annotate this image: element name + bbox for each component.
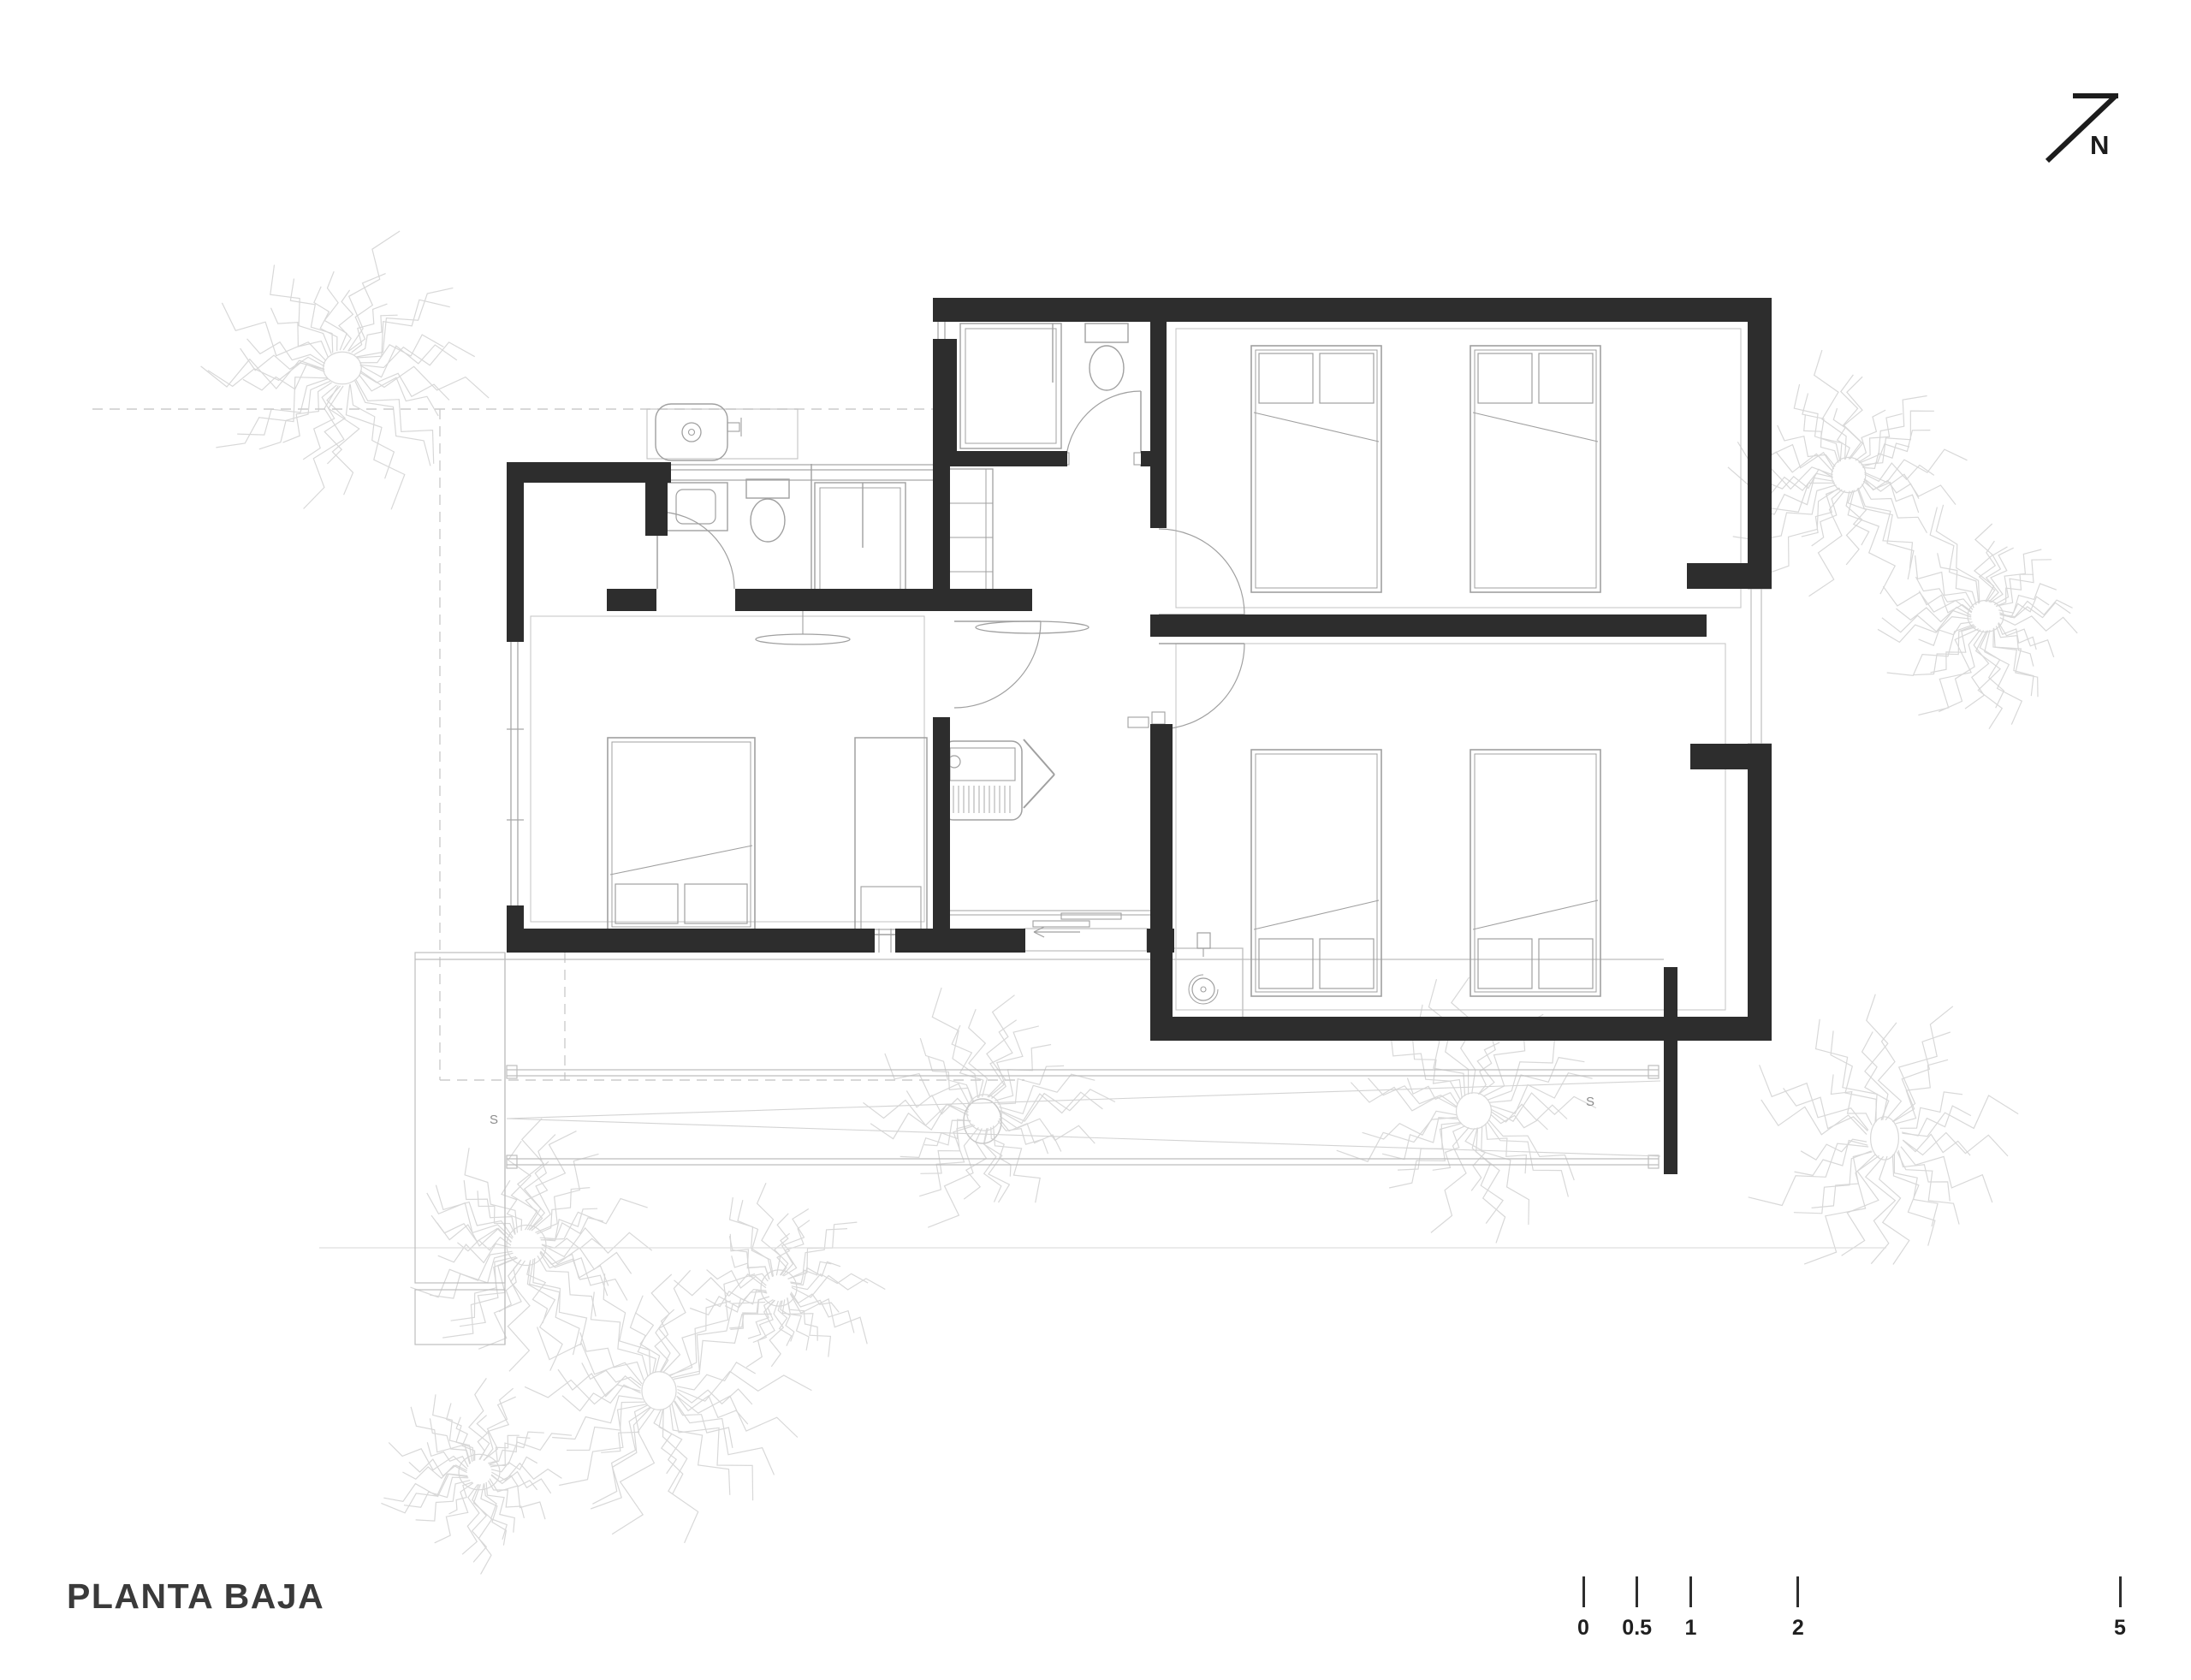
tree-frond [1857, 489, 1914, 580]
pillow [1320, 939, 1374, 988]
wall-segment [933, 339, 957, 464]
tree-frond [1841, 375, 1861, 460]
tree-trunk [324, 352, 361, 384]
tree-frond [964, 1128, 986, 1199]
tree-frond [769, 1301, 783, 1367]
drain-dot [1201, 987, 1206, 992]
tree-frond [1862, 430, 1931, 467]
door-swing [1159, 529, 1244, 614]
bed-inner [1475, 350, 1596, 588]
wall-segment [507, 462, 671, 483]
trees-layer [201, 231, 2078, 1574]
tree [201, 231, 490, 509]
toilet-tank [1085, 324, 1128, 342]
tree-frond [477, 1416, 487, 1460]
bed-outline [1470, 346, 1600, 592]
tree-frond [499, 1260, 521, 1312]
tree [411, 1119, 652, 1371]
tree-frond [631, 1312, 656, 1374]
drain [1192, 978, 1214, 1000]
pillow [1539, 939, 1593, 988]
wall-segment [1141, 451, 1150, 466]
shower-tray [960, 324, 1061, 448]
tree-frond [1491, 1093, 1596, 1121]
wall-segment [933, 451, 1067, 466]
tree-frond [1897, 1152, 1960, 1225]
tree-frond [1000, 1092, 1103, 1124]
tree-frond [707, 1270, 767, 1288]
tree-frond [1762, 436, 1834, 469]
heater-port-dot [689, 430, 695, 436]
tree-trunk [967, 1095, 1002, 1131]
terrace-layer [319, 589, 1886, 1345]
tree-frond [339, 290, 353, 350]
wall-segment [1150, 614, 1707, 637]
tree-frond [1897, 608, 1972, 622]
tree-frond [1903, 1095, 2019, 1137]
tree-frond [359, 372, 449, 400]
wall-segment [933, 298, 957, 312]
tree-frond [1486, 1124, 1527, 1174]
pillow [1478, 939, 1532, 988]
tree-frond [730, 1297, 769, 1329]
wall-segment [1150, 1017, 1772, 1041]
sheet-fold [1254, 413, 1379, 442]
tree-frond [283, 383, 332, 442]
tree-trunk [507, 1225, 546, 1265]
wall-segment [1690, 744, 1748, 769]
tree-frond [1844, 377, 1863, 459]
bed-outline [1251, 346, 1381, 592]
deck-rail-cap [507, 1155, 517, 1168]
tree-frond [791, 1261, 840, 1285]
tree-trunk [1832, 457, 1866, 492]
shower-tray-inner [820, 488, 900, 597]
tree-frond [1848, 490, 1869, 545]
fixtures-layer [507, 312, 1741, 1010]
tree-frond [270, 264, 331, 353]
door-jamb [1152, 712, 1165, 724]
room-inset-line [531, 616, 924, 922]
wall-segment [735, 589, 1032, 611]
tree-frond [1892, 1006, 1953, 1122]
toilet-tank [746, 479, 789, 498]
deck-rail-cap [507, 1066, 517, 1078]
tree-frond [348, 231, 400, 351]
wardrobe [855, 738, 927, 935]
tree-frond [663, 1409, 698, 1543]
tree-frond [537, 1256, 596, 1316]
bifold-door [1024, 775, 1054, 808]
pillow [1539, 353, 1593, 403]
toilet-bowl [1090, 346, 1124, 390]
tree-frond [1833, 408, 1850, 460]
tree-frond [1842, 1155, 1879, 1256]
tree-frond [508, 1261, 530, 1371]
tree-frond [994, 1125, 1041, 1202]
tree-frond [360, 366, 489, 398]
shower-tray-inner [965, 329, 1056, 443]
wall-segment [607, 589, 656, 611]
tree-frond [411, 1407, 470, 1464]
tree-frond [541, 1251, 609, 1286]
door-jamb [1128, 717, 1149, 727]
tree [381, 1378, 572, 1574]
tree [674, 1183, 886, 1367]
wall-segment [895, 929, 1025, 953]
slider-leaf [1061, 913, 1121, 919]
entry-arrow-head [1034, 927, 1044, 932]
planter-box [415, 1290, 505, 1345]
tree-trunk [642, 1372, 676, 1410]
pillow [1478, 353, 1532, 403]
wall-segment [1664, 967, 1677, 1174]
tree-trunk [1968, 600, 2004, 632]
tree-frond [2000, 600, 2073, 617]
pillow [1259, 353, 1313, 403]
tree-frond [1896, 1060, 1948, 1124]
tree-frond [1816, 1019, 1878, 1123]
bed-inner [1475, 754, 1596, 992]
tree-frond [460, 1258, 518, 1327]
tree-frond [208, 363, 324, 386]
tree-frond [1903, 1134, 1970, 1155]
tree-frond [540, 1252, 627, 1301]
bed [608, 738, 755, 931]
tree-frond [540, 1208, 597, 1238]
pillow [1259, 939, 1313, 988]
entry-arrow-head [1034, 932, 1044, 937]
tree-frond [592, 1407, 650, 1504]
tree [525, 1270, 811, 1543]
tree-trunk [1871, 1117, 1899, 1160]
wall-segment [933, 717, 950, 942]
tree-frond [525, 1380, 640, 1404]
bed-inner [1256, 350, 1377, 588]
wall-segment [507, 929, 875, 953]
tree-frond [792, 1276, 885, 1297]
wall-segment [933, 298, 1772, 322]
north-label: N [2090, 130, 2109, 160]
vanity-sink [676, 490, 715, 524]
heater-platform [647, 409, 798, 459]
drain-arc [1189, 975, 1218, 1004]
tree-frond [360, 342, 475, 368]
tree-frond [457, 1238, 511, 1251]
tree-frond [535, 1154, 598, 1232]
door-swing [1159, 644, 1244, 729]
tree-frond [1431, 1127, 1469, 1232]
pillow [615, 884, 678, 923]
bed [1251, 346, 1381, 592]
tree-frond [1994, 628, 2038, 698]
tree-frond [1433, 1126, 1465, 1171]
tree-frond [558, 1369, 641, 1397]
tree-frond [1778, 425, 1836, 466]
tree-frond [222, 303, 325, 361]
slope-label-right: S [1586, 1095, 1594, 1109]
tree-frond [357, 300, 450, 358]
toilet-bowl [751, 499, 785, 542]
wall-segment [645, 483, 668, 536]
tree-frond [518, 1119, 543, 1230]
tree-frond [674, 1401, 774, 1475]
tree-frond [1491, 1114, 1548, 1130]
shower-tray [815, 483, 905, 603]
deck-rail-cap [1648, 1066, 1659, 1078]
tree-frond [355, 381, 430, 466]
deck-rail-cap [1648, 1155, 1659, 1168]
heater-port [682, 423, 701, 442]
slope-label-left: S [490, 1113, 498, 1127]
wall-segment [1748, 298, 1772, 563]
tree-frond [1794, 1151, 1872, 1214]
tree-frond [1918, 629, 1979, 715]
tree-frond [580, 1333, 644, 1380]
sheet-fold [1473, 413, 1598, 442]
tree-frond [730, 1197, 773, 1277]
pillow [685, 884, 747, 923]
tree-frond [928, 1127, 978, 1227]
tree-frond [354, 315, 398, 354]
tree [864, 988, 1115, 1227]
bed-inner [612, 742, 751, 927]
tree-frond [654, 1409, 676, 1474]
wall-segment [1150, 322, 1167, 528]
sheet-fold [1254, 900, 1379, 929]
tree-frond [791, 1293, 854, 1333]
tree-frond [781, 1301, 794, 1342]
tree-frond [678, 1389, 752, 1404]
tree-frond [1802, 394, 1842, 462]
tree-frond [1903, 1133, 2008, 1156]
tree-frond [559, 1404, 646, 1486]
tree-frond [998, 1066, 1064, 1104]
tree-frond [787, 1297, 817, 1340]
water-heater [656, 404, 727, 460]
room-inset-line [1176, 644, 1725, 1010]
tree-frond [1489, 1058, 1585, 1103]
wall-segment [1748, 744, 1772, 1017]
sheet-fold [1473, 900, 1598, 929]
tree-frond [1919, 622, 1973, 645]
bed-inner [1256, 754, 1377, 992]
ceiling-fan [756, 634, 850, 644]
tree-trunk [761, 1270, 797, 1306]
slider-leaf [1033, 921, 1090, 927]
tree-frond [787, 1298, 831, 1357]
annotations-layer: S S N [490, 96, 2118, 1127]
tree-frond [346, 384, 404, 509]
tree-frond [464, 1180, 515, 1234]
tree-frond [472, 1484, 487, 1562]
tree-frond [1802, 489, 1840, 537]
walls-layer [507, 298, 1772, 1174]
tree-frond [348, 274, 385, 352]
roof-overhang-dashed-layer [92, 409, 1024, 1080]
tree-frond [530, 1259, 579, 1355]
tree-frond [1389, 1124, 1462, 1188]
tree-frond [1939, 630, 1980, 712]
heater-pipe [727, 423, 739, 431]
tree-frond [381, 1474, 467, 1513]
wall-segment [1687, 563, 1772, 589]
tree-frond [357, 288, 454, 357]
tree-frond [237, 379, 328, 436]
pillow [1320, 353, 1374, 403]
tree-trunk [1457, 1093, 1492, 1129]
tree-frond [900, 1120, 971, 1157]
tree-frond [1337, 1117, 1458, 1161]
tree-frond [919, 1125, 975, 1196]
tree-frond [995, 1045, 1051, 1101]
tree-frond [1858, 488, 1912, 568]
wardrobe-drawer [861, 887, 921, 929]
wall-segment [1150, 724, 1173, 1017]
bed [1470, 346, 1600, 592]
tree-frond [1965, 631, 1989, 709]
tree-frond [674, 1401, 733, 1448]
tree-frond [612, 1409, 655, 1535]
tree-frond [527, 1260, 548, 1323]
outdoor-faucet [1197, 933, 1210, 948]
door-swing [1066, 391, 1141, 466]
floor-plan-drawing: S S N [0, 0, 2191, 1680]
drawing-sheet: S S N PLANTA BAJA 00.5125 [0, 0, 2191, 1680]
tree-frond [732, 1256, 769, 1281]
tree-frond [436, 1185, 513, 1238]
tree-frond [1999, 597, 2049, 617]
tree-frond [451, 1256, 516, 1321]
wall-segment [507, 462, 524, 642]
bed-outline [608, 738, 755, 931]
tree-frond [1760, 1065, 1868, 1130]
tree-frond [201, 359, 324, 389]
ceiling-fan [976, 621, 1089, 633]
bifold-door [1024, 739, 1054, 775]
door-swing [954, 621, 1041, 708]
tree-frond [1862, 1032, 1889, 1121]
drawing-title: PLANTA BAJA [67, 1576, 324, 1617]
tree-frond [1985, 630, 2022, 725]
sheet-fold [610, 846, 752, 875]
north-arrow-icon: N [2047, 96, 2118, 161]
tree [1878, 505, 2077, 729]
tree-frond [1919, 591, 1972, 613]
tree-frond [531, 1131, 577, 1231]
tree-frond [1762, 488, 1839, 575]
tree-frond [1976, 631, 2003, 729]
tree-frond [491, 1475, 537, 1490]
tree [1749, 994, 2019, 1265]
room-inset-line [1176, 329, 1741, 608]
